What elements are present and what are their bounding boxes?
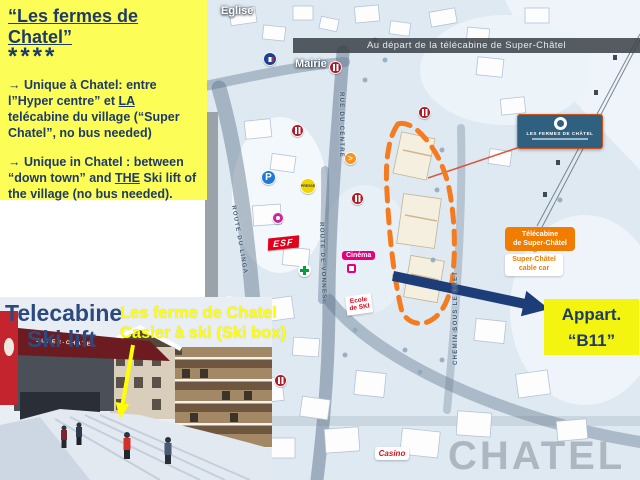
fermes-logo-icon [554, 117, 567, 130]
info-note-box: “Les fermes de Chatel” **** → Unique à C… [0, 0, 207, 200]
restaurant-icon [329, 61, 342, 74]
fermes-subtitle-line [532, 138, 588, 140]
parking-icon: P [261, 170, 276, 185]
restaurant-icon [291, 124, 304, 137]
ski-school-label: Ecole de SKI [345, 293, 374, 315]
pharmacy-icon [298, 264, 311, 277]
ski-school-line2: de SKI [349, 303, 370, 313]
photo-caption-line2: Ski lift [27, 328, 96, 351]
restaurant-icon [418, 106, 431, 119]
french-flag-icon [266, 57, 274, 62]
note-paragraph-fr: → Unique à Chatel: entre l”Hyper centre”… [8, 77, 199, 141]
telecabine-en-line1: Super-Châtel [505, 256, 563, 265]
photo-caption-line1: Telecabine [5, 302, 122, 325]
casino-store-logo: Casino [375, 447, 409, 460]
street-chemin-sous-le-cret: CHEMIN SOUS LE CRET [453, 271, 459, 365]
apartment-b11-callout: Appart. “B11” [544, 299, 639, 355]
note-title: “Les fermes de Chatel” [8, 6, 199, 48]
restaurant-icon [274, 374, 287, 387]
poi-icon-magenta [272, 212, 284, 224]
en-underlined: THE [115, 171, 140, 185]
chatel-watermark: CHATEL [448, 434, 625, 479]
street-rue-du-centre: RUE DU CENTRE [338, 92, 344, 158]
fermes-title: LES FERMES DE CHÂTEL [518, 131, 602, 136]
mairie-label: Mairie [295, 58, 327, 70]
telecabine-fr-line2: de Super-Châtel [505, 239, 575, 248]
telecabine-label-en: Super-Châtel cable car [505, 254, 563, 276]
b11-line2: “B11” [544, 328, 639, 354]
b11-line1: Appart. [544, 302, 639, 328]
fr-text2: telécabine du village (“Super Chatel”, n… [8, 110, 180, 140]
fermes-de-chatel-badge: LES FERMES DE CHÂTEL [517, 114, 603, 149]
fr-underlined: LA [118, 94, 134, 108]
cinema-label: Cinéma [342, 251, 375, 260]
eglise-label: Eglise [221, 5, 253, 17]
photo-annotation-line2: Casier à ski (Ski box) [120, 325, 286, 342]
presse-icon: PRESSE [300, 178, 316, 194]
cinema-icon [347, 264, 356, 273]
telecabine-fr-line1: Télécabine [505, 230, 575, 239]
telecabine-label-fr: Télécabine de Super-Châtel [505, 227, 575, 251]
note-stars: **** [8, 50, 199, 64]
restaurant-icon [351, 192, 364, 205]
town-hall-icon [263, 52, 277, 66]
note-paragraph-en: → Unique in Chatel : between “down town”… [8, 154, 199, 202]
photo-annotation-line1: Les ferme de Chatel [120, 305, 277, 322]
direction-icon: > [344, 152, 357, 165]
telecabine-en-line2: cable car [505, 265, 563, 274]
map-banner: Au départ de la télécabine de Super-Chât… [293, 38, 640, 53]
slide: Au départ de la télécabine de Super-Chât… [0, 0, 640, 480]
